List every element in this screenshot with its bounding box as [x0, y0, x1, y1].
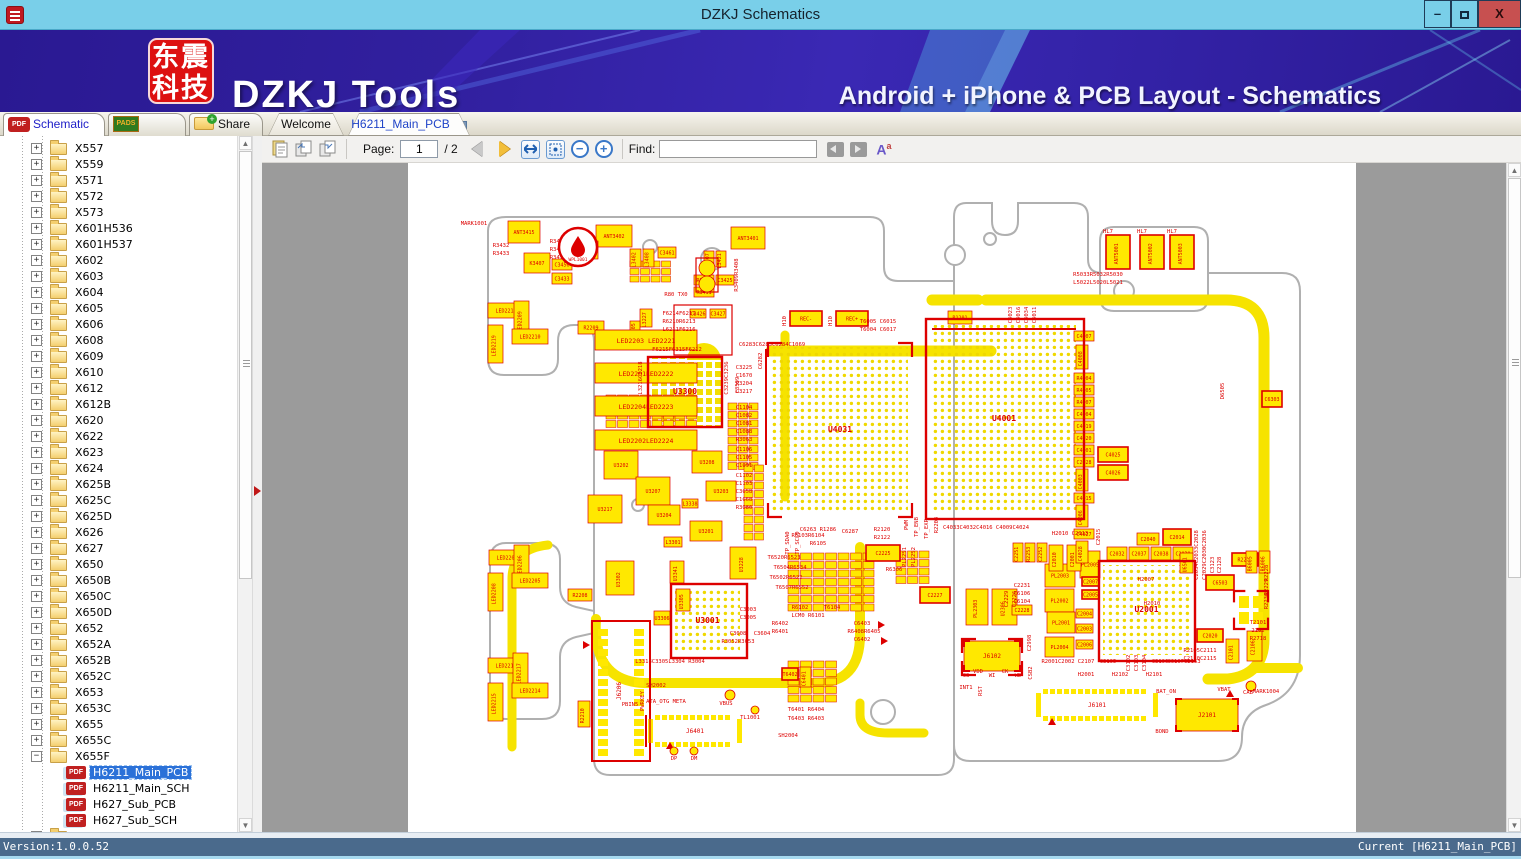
- expand-icon[interactable]: +: [31, 719, 42, 730]
- tree-scrollbar[interactable]: ▲ ▼: [237, 136, 252, 832]
- pcb-label: C1102: [736, 473, 753, 479]
- pcb-label: LED2203 LED2221: [617, 337, 676, 345]
- pcb-label: C2020: [1202, 633, 1217, 639]
- find-input[interactable]: [659, 140, 817, 158]
- prev-view-button[interactable]: [294, 139, 314, 159]
- pcb-label: DP: [671, 756, 678, 762]
- folder-icon: [50, 415, 67, 427]
- tree-folder-X652B[interactable]: +X652B: [0, 652, 237, 668]
- find-next-icon[interactable]: [850, 142, 867, 157]
- pcb-label: H2001: [1078, 672, 1095, 678]
- header-banner: 东震 科技 DZKJ Tools Android + iPhone & PCB …: [0, 30, 1521, 112]
- pcb-label: C2032: [1109, 551, 1124, 557]
- expand-icon[interactable]: +: [31, 655, 42, 666]
- scroll-up-icon[interactable]: ▲: [239, 136, 252, 150]
- pcb-label: C4016: [1016, 307, 1022, 324]
- logo-line2: 科技: [150, 73, 212, 104]
- folder-icon: [50, 303, 67, 315]
- zoom-in-button[interactable]: +: [595, 140, 613, 158]
- expand-icon[interactable]: +: [31, 623, 42, 634]
- tab-layout[interactable]: PADSLayout: [108, 113, 186, 136]
- pcb-label: LED2215: [492, 693, 498, 714]
- toolbar-separator: [346, 139, 347, 159]
- pcb-label: R80 TX0: [664, 292, 687, 298]
- expand-icon[interactable]: +: [31, 159, 42, 170]
- tree-folder-label: X653C: [72, 702, 114, 715]
- pcb-label: J6101: [1088, 702, 1106, 709]
- component-L3338: L3338: [682, 499, 698, 508]
- tree-folder-label: X612B: [72, 398, 114, 411]
- tree-folder-X608[interactable]: +X608: [0, 332, 237, 348]
- fit-page-button[interactable]: [546, 140, 565, 159]
- tab-schematic[interactable]: PDFSchematic: [3, 113, 105, 136]
- pcb-label: ANT5001: [1114, 243, 1120, 264]
- zoom-out-button[interactable]: −: [571, 140, 589, 158]
- expand-icon[interactable]: +: [31, 351, 42, 362]
- expand-icon[interactable]: +: [31, 319, 42, 330]
- tree-folder-X650D[interactable]: +X650D: [0, 604, 237, 620]
- fit-page-icon: [549, 143, 562, 156]
- pcb-label: C2003: [1077, 626, 1092, 632]
- panel-splitter[interactable]: [252, 136, 262, 832]
- page-number-input[interactable]: [400, 140, 438, 158]
- tree-folder-X653[interactable]: +X653: [0, 684, 237, 700]
- pcb-label: C3239C3236: [724, 361, 730, 394]
- tree-folder-X655[interactable]: +X655: [0, 716, 237, 732]
- component-C6401: C6401: [800, 667, 811, 687]
- tree-folder-X609[interactable]: +X609: [0, 348, 237, 364]
- splitter-collapse-icon[interactable]: [254, 486, 261, 496]
- scroll-down-icon[interactable]: ▼: [1508, 818, 1521, 832]
- pcb-label: R3052R3053: [721, 639, 754, 645]
- expand-icon[interactable]: +: [31, 271, 42, 282]
- pcb-label: F6214F6211: [662, 311, 695, 317]
- pcb-label: D6505: [1220, 383, 1226, 400]
- tree-folder-X626[interactable]: +X626: [0, 524, 237, 540]
- component-PL2002: PL2002: [1045, 589, 1074, 612]
- pcb-label: C3104: [1142, 654, 1148, 671]
- pcb-label: C4025: [1105, 452, 1120, 458]
- expand-icon[interactable]: +: [31, 399, 42, 410]
- tree-file-H6211_Main_SCH[interactable]: PDFH6211_Main_SCH: [0, 780, 237, 796]
- tree-folder-label: X650B: [72, 574, 114, 587]
- pcb-label: T2101: [1250, 620, 1267, 626]
- tree-folder-label: X650D: [72, 606, 115, 619]
- pcb-label: DM: [691, 756, 698, 762]
- tree-folder-X622[interactable]: +X622: [0, 428, 237, 444]
- component-C4025: C4025: [1098, 447, 1128, 462]
- match-case-icon[interactable]: Aa: [876, 141, 891, 158]
- titlebar: DZKJ Schematics – X: [0, 0, 1521, 30]
- component-C2225: C2225: [866, 545, 900, 561]
- pcb-label: F6215F6315F6212: [652, 347, 702, 353]
- tree-folder-X623[interactable]: +X623: [0, 444, 237, 460]
- tree-folder-label: X604: [72, 286, 107, 299]
- pcb-label: R2718: [1250, 636, 1267, 642]
- pcb-label: T6401 R6404: [788, 707, 825, 713]
- pcb-label: LED2214: [519, 688, 540, 694]
- tree-folder-X655C[interactable]: +X655C: [0, 732, 237, 748]
- tab-schematic-label: Schematic: [33, 117, 89, 131]
- pdf-file-icon: PDF: [66, 782, 86, 795]
- connector-J2101: J2101: [1176, 699, 1238, 731]
- component-C2010: C2010: [1049, 545, 1063, 571]
- pcb-label: L3408: [645, 252, 651, 267]
- component-ANT5001: ANT5001: [1106, 235, 1130, 269]
- tree-folder-X650B[interactable]: +X650B: [0, 572, 237, 588]
- component-L3227: L3227: [640, 309, 652, 327]
- prev-page-button[interactable]: [472, 141, 483, 157]
- pcb-label: VBAT: [1217, 687, 1231, 693]
- tree-folder-X624[interactable]: +X624: [0, 460, 237, 476]
- pcb-label: RST: [978, 685, 984, 696]
- tab-share-label: Share: [218, 117, 250, 131]
- pcb-label: U3300: [673, 387, 697, 396]
- tree-folder-label: X655: [72, 718, 107, 731]
- tree-folder-X625C[interactable]: +X625C: [0, 492, 237, 508]
- tree-folder-label: X573: [72, 206, 107, 219]
- pcb-label: C2001: [1070, 552, 1076, 567]
- expand-icon[interactable]: +: [31, 415, 42, 426]
- pcb-label: C3604: [754, 631, 771, 637]
- expand-icon[interactable]: +: [31, 223, 42, 234]
- component-C4003: C4003: [1076, 469, 1088, 491]
- tab-share[interactable]: Share: [189, 113, 263, 136]
- scroll-down-icon[interactable]: ▼: [239, 818, 252, 832]
- pcb-label: H2101: [1146, 672, 1163, 678]
- component-L3301: L3301: [664, 537, 682, 547]
- page-label: Page:: [363, 142, 394, 156]
- component-C6303: C6303: [1262, 391, 1282, 407]
- pcb-label: T6402: [782, 672, 797, 678]
- expand-icon[interactable]: +: [31, 735, 42, 746]
- maximize-icon: [1460, 11, 1469, 19]
- pcb-label: C2034C2033C2028: [1194, 530, 1200, 580]
- folder-icon: [50, 735, 67, 747]
- version-text: Version:1.0.0.52: [3, 838, 109, 856]
- pcb-label: C2128: [1217, 557, 1223, 574]
- tree-file-H627_Sub_PCB[interactable]: PDFH627_Sub_PCB: [0, 796, 237, 812]
- pcb-label: PL2002: [1050, 598, 1068, 604]
- pcb-label: C1105: [736, 455, 753, 461]
- tree-folder-X602[interactable]: +X602: [0, 252, 237, 268]
- expand-icon[interactable]: +: [31, 367, 42, 378]
- pcb-label: MARK1004: [1253, 689, 1280, 695]
- pcb-label: H10: [828, 316, 834, 326]
- folder-icon: [50, 399, 67, 411]
- pcb-label: C6303: [1264, 397, 1279, 403]
- component-U3208: U3208: [692, 451, 722, 473]
- tree-folder-X572[interactable]: +X572: [0, 188, 237, 204]
- minimize-button[interactable]: –: [1424, 0, 1451, 28]
- tree-folder-X605[interactable]: +X605: [0, 300, 237, 316]
- folder-icon: [50, 351, 67, 363]
- component-C2040: C2040: [1137, 533, 1159, 545]
- pcb-label: R3063: [736, 437, 753, 443]
- brand-title: DZKJ Tools: [232, 74, 460, 112]
- pcb-label: U3228: [739, 557, 745, 572]
- expand-icon[interactable]: +: [31, 239, 42, 250]
- expand-icon[interactable]: +: [31, 639, 42, 650]
- pcb-page[interactable]: U3300U4031U4001U3001U2001ANT3415ANT3402A…: [408, 163, 1356, 832]
- pcb-canvas[interactable]: U3300U4031U4001U3001U2001ANT3415ANT3402A…: [408, 163, 1356, 832]
- folder-icon: [50, 175, 67, 187]
- bga-U4001: U4001: [932, 325, 1076, 513]
- folder-icon: [50, 719, 67, 731]
- pcb-label: C2007: [1083, 579, 1098, 585]
- component-C2252: C2252: [1037, 543, 1047, 562]
- tree-folder-label: X557: [72, 142, 107, 155]
- expand-icon[interactable]: +: [31, 527, 42, 538]
- pcb-label: LED2217: [517, 663, 523, 684]
- component-B6005: B6005: [1246, 551, 1257, 573]
- tree-file-H6211_Main_PCB[interactable]: PDFH6211_Main_PCB: [0, 764, 237, 780]
- pcb-label: C2038: [1153, 551, 1168, 557]
- pcb-label: ATA_OTG META: [646, 699, 686, 705]
- pcb-label: PL2252: [911, 547, 917, 567]
- tree-folder-X620[interactable]: +X620: [0, 412, 237, 428]
- tree-folder-X653C[interactable]: +X653C: [0, 700, 237, 716]
- component-LED2214: LED2214: [512, 683, 548, 698]
- tree-folder-X650[interactable]: +X650: [0, 556, 237, 572]
- fit-width-icon: [524, 144, 537, 155]
- tree-folder-X625B[interactable]: +X625B: [0, 476, 237, 492]
- tree-file-label: H627_Sub_SCH: [90, 814, 180, 827]
- pcb-label: C2037: [1131, 551, 1146, 557]
- tree-folder-X655F[interactable]: −X655F: [0, 748, 237, 764]
- pcb-label: T6004 C6017: [860, 327, 896, 333]
- folder-icon: [50, 591, 67, 603]
- tree-folder-label: X601H536: [72, 222, 136, 235]
- viewer-scrollbar-thumb[interactable]: [1508, 178, 1521, 578]
- folder-icon: [50, 383, 67, 395]
- thumb-grip-icon: [1512, 359, 1519, 360]
- tree-folder-X571[interactable]: +X571: [0, 172, 237, 188]
- component-ANT5002: ANT5002: [1140, 235, 1164, 269]
- pcb-label: R6102: [792, 605, 809, 611]
- expand-icon[interactable]: +: [31, 191, 42, 202]
- pcb-label: C6403: [854, 621, 871, 627]
- maximize-button[interactable]: [1451, 0, 1478, 28]
- fit-width-button[interactable]: [521, 140, 540, 159]
- folder-icon: [50, 639, 67, 651]
- tree-folder-label: X652C: [72, 670, 114, 683]
- component-U3305: U3305: [676, 589, 690, 611]
- next-page-button[interactable]: [499, 141, 510, 157]
- expand-icon[interactable]: +: [31, 511, 42, 522]
- component-C2227: C2227: [920, 587, 950, 603]
- pcb-label: CSB2: [1028, 666, 1034, 679]
- pcb-label: R3080: [736, 505, 753, 511]
- pcb-label: REC-: [800, 316, 812, 322]
- pcb-label: C1106: [736, 447, 753, 453]
- pcb-label: T6104: [824, 605, 841, 611]
- component-C4008: C4008: [1076, 345, 1088, 369]
- expand-icon[interactable]: +: [31, 591, 42, 602]
- tree-folder-X559[interactable]: +X559: [0, 156, 237, 172]
- pcb-label: R6210R6213: [662, 319, 695, 325]
- pcb-label: H2010 C2013: [1052, 531, 1088, 537]
- find-previous-icon[interactable]: [827, 142, 844, 157]
- doc-tab-welcome[interactable]: Welcome: [268, 113, 344, 136]
- folder-icon: [50, 367, 67, 379]
- tree-folder-label: X652B: [72, 654, 114, 667]
- component-U3203: U3203: [706, 481, 736, 501]
- component-C2007: C2007: [1082, 577, 1099, 586]
- component-ANT3415: ANT3415: [508, 221, 540, 243]
- expand-icon[interactable]: +: [31, 703, 42, 714]
- pcb-label: WD: [1015, 673, 1022, 679]
- component-C2251: C2251: [1013, 543, 1023, 562]
- tree-folder-X573[interactable]: +X573: [0, 204, 237, 220]
- tree-folder-label: X601H537: [72, 238, 136, 251]
- pcb-label: C4033C4032C4016 C4009C4024: [943, 525, 1030, 531]
- expand-icon[interactable]: +: [31, 575, 42, 586]
- pcb-label: PBIN5: [622, 702, 639, 708]
- tree-folder-X625D[interactable]: +X625D: [0, 508, 237, 524]
- viewer-scrollbar[interactable]: ▲ ▼: [1506, 163, 1521, 832]
- pcb-label: PWRKEY: [640, 690, 646, 711]
- tree-folder-X601H537[interactable]: +X601H537: [0, 236, 237, 252]
- component-C3461: C3461: [658, 247, 676, 258]
- component-C2020: C2020: [1197, 629, 1223, 642]
- bga-U4031: U4031: [772, 347, 908, 513]
- pcb-label: ANT3402: [603, 234, 624, 240]
- expand-icon[interactable]: +: [31, 495, 42, 506]
- pcb-label: R2204: [934, 516, 940, 533]
- folder-icon: [50, 671, 67, 683]
- tree-folder-X650C[interactable]: +X650C: [0, 588, 237, 604]
- tree-folder-X612B[interactable]: +X612B: [0, 396, 237, 412]
- tree-folder-X652[interactable]: +X652: [0, 620, 237, 636]
- toolbar-separator: [622, 139, 623, 159]
- pcb-label: U3001: [695, 616, 719, 625]
- expand-icon[interactable]: +: [31, 543, 42, 554]
- expand-icon[interactable]: +: [31, 607, 42, 618]
- pcb-label: PL2251: [902, 547, 908, 567]
- tree-folder-label: X609: [72, 350, 107, 363]
- folder-icon: [50, 335, 67, 347]
- pcb-label: C6106: [1014, 591, 1031, 597]
- pcb-viewer[interactable]: U3300U4031U4001U3001U2001ANT3415ANT3402A…: [262, 163, 1506, 832]
- component-U3204: U3204: [648, 505, 680, 525]
- component-U3302: U3302: [606, 561, 634, 595]
- tree-file-H627_Sub_SCH[interactable]: PDFH627_Sub_SCH: [0, 812, 237, 828]
- expand-icon[interactable]: +: [31, 303, 42, 314]
- pcb-label: H2102: [1112, 672, 1129, 678]
- pads-icon: PADS: [113, 116, 139, 132]
- pcb-label: R6306: [886, 567, 903, 573]
- doc-tab-h6211-label: H6211_Main_PCB: [351, 117, 450, 131]
- pcb-label: C3599: [735, 377, 741, 394]
- pcb-label: ANT5002: [1148, 243, 1154, 264]
- folder-icon: [50, 271, 67, 283]
- component-ANT3402: ANT3402: [596, 225, 632, 247]
- pcb-label: C2227: [927, 593, 942, 599]
- tree-folder-X604[interactable]: +X604: [0, 284, 237, 300]
- pcb-label: WI: [989, 673, 996, 679]
- expand-icon[interactable]: +: [31, 335, 42, 346]
- pcb-label: LED2210: [519, 334, 540, 340]
- tree-folder-X652C[interactable]: +X652C: [0, 668, 237, 684]
- folder-icon: [50, 223, 67, 235]
- pcb-label: T6507R6552: [775, 585, 808, 591]
- pcb-label: C3461: [659, 250, 674, 256]
- pdf-file-icon: PDF: [66, 766, 86, 779]
- pcb-label: ANT3415: [513, 230, 534, 236]
- component-L3402: L3402: [630, 249, 641, 267]
- pcb-label: R2208: [572, 593, 587, 599]
- pcb-label: C2015: [1096, 529, 1102, 546]
- pcb-label: TP_EXP: [924, 518, 930, 539]
- expand-icon[interactable]: +: [31, 383, 42, 394]
- expand-icon[interactable]: +: [31, 143, 42, 154]
- collapse-icon[interactable]: −: [31, 751, 42, 762]
- page-copy2-icon: [319, 140, 338, 158]
- tree-folder-X606[interactable]: +X606: [0, 316, 237, 332]
- expand-icon[interactable]: +: [31, 463, 42, 474]
- component-K3407: K3407: [524, 253, 550, 273]
- pcb-label: C1104: [736, 405, 753, 411]
- pcb-label: C3433: [554, 276, 569, 282]
- pcb-label: C3658: [736, 489, 753, 495]
- folder-icon: [50, 511, 67, 523]
- next-view-button[interactable]: [318, 139, 338, 159]
- expand-icon[interactable]: +: [31, 207, 42, 218]
- pcb-label: U3204: [656, 513, 671, 519]
- pcb-label: R3432: [493, 243, 510, 249]
- close-button[interactable]: X: [1478, 0, 1521, 28]
- pcb-label: C6104: [1014, 599, 1031, 605]
- scroll-up-icon[interactable]: ▲: [1508, 163, 1521, 177]
- pcb-label: C2251: [1014, 547, 1020, 562]
- component-R1201: R1201: [948, 311, 972, 324]
- pcb-label: R2122: [874, 535, 891, 541]
- pcb-label: C6282: [758, 353, 764, 370]
- expand-icon[interactable]: +: [31, 671, 42, 682]
- pcb-label: R2105C2111: [1183, 648, 1216, 654]
- tree-folder-X612[interactable]: +X612: [0, 380, 237, 396]
- pcb-label: SH2002: [646, 683, 666, 689]
- tree-folder-X603[interactable]: +X603: [0, 268, 237, 284]
- pcb-label: U3201: [698, 529, 713, 535]
- pcb-label: VDD: [973, 669, 983, 675]
- tree-folder-X627[interactable]: +X627: [0, 540, 237, 556]
- expand-icon[interactable]: +: [31, 431, 42, 442]
- notes-page-button[interactable]: [270, 139, 290, 159]
- tree-folder-X557[interactable]: +X557: [0, 140, 237, 156]
- tree-folder-X601H536[interactable]: +X601H536: [0, 220, 237, 236]
- expand-icon[interactable]: +: [31, 479, 42, 490]
- pcb-label: C6287: [842, 529, 859, 535]
- tree-folder-X652A[interactable]: +X652A: [0, 636, 237, 652]
- component-LED2219: LED2219: [488, 325, 503, 363]
- expand-icon[interactable]: +: [31, 175, 42, 186]
- pcb-label: TP_ENB: [914, 516, 920, 537]
- component-C3427: C3427: [710, 309, 726, 318]
- pcb-label: C2010: [1052, 552, 1058, 567]
- expand-icon[interactable]: +: [31, 287, 42, 298]
- expand-icon[interactable]: +: [31, 447, 42, 458]
- doc-tab-h6211-main-pcb[interactable]: H6211_Main_PCBx: [348, 113, 470, 136]
- expand-icon[interactable]: +: [31, 255, 42, 266]
- expand-icon[interactable]: +: [31, 559, 42, 570]
- tree-scrollbar-thumb[interactable]: [239, 151, 252, 579]
- tree-folder-X610[interactable]: +X610: [0, 364, 237, 380]
- pcb-label: PL2003: [1051, 573, 1069, 579]
- pcb-label: C1103: [736, 481, 753, 487]
- expand-icon[interactable]: +: [31, 687, 42, 698]
